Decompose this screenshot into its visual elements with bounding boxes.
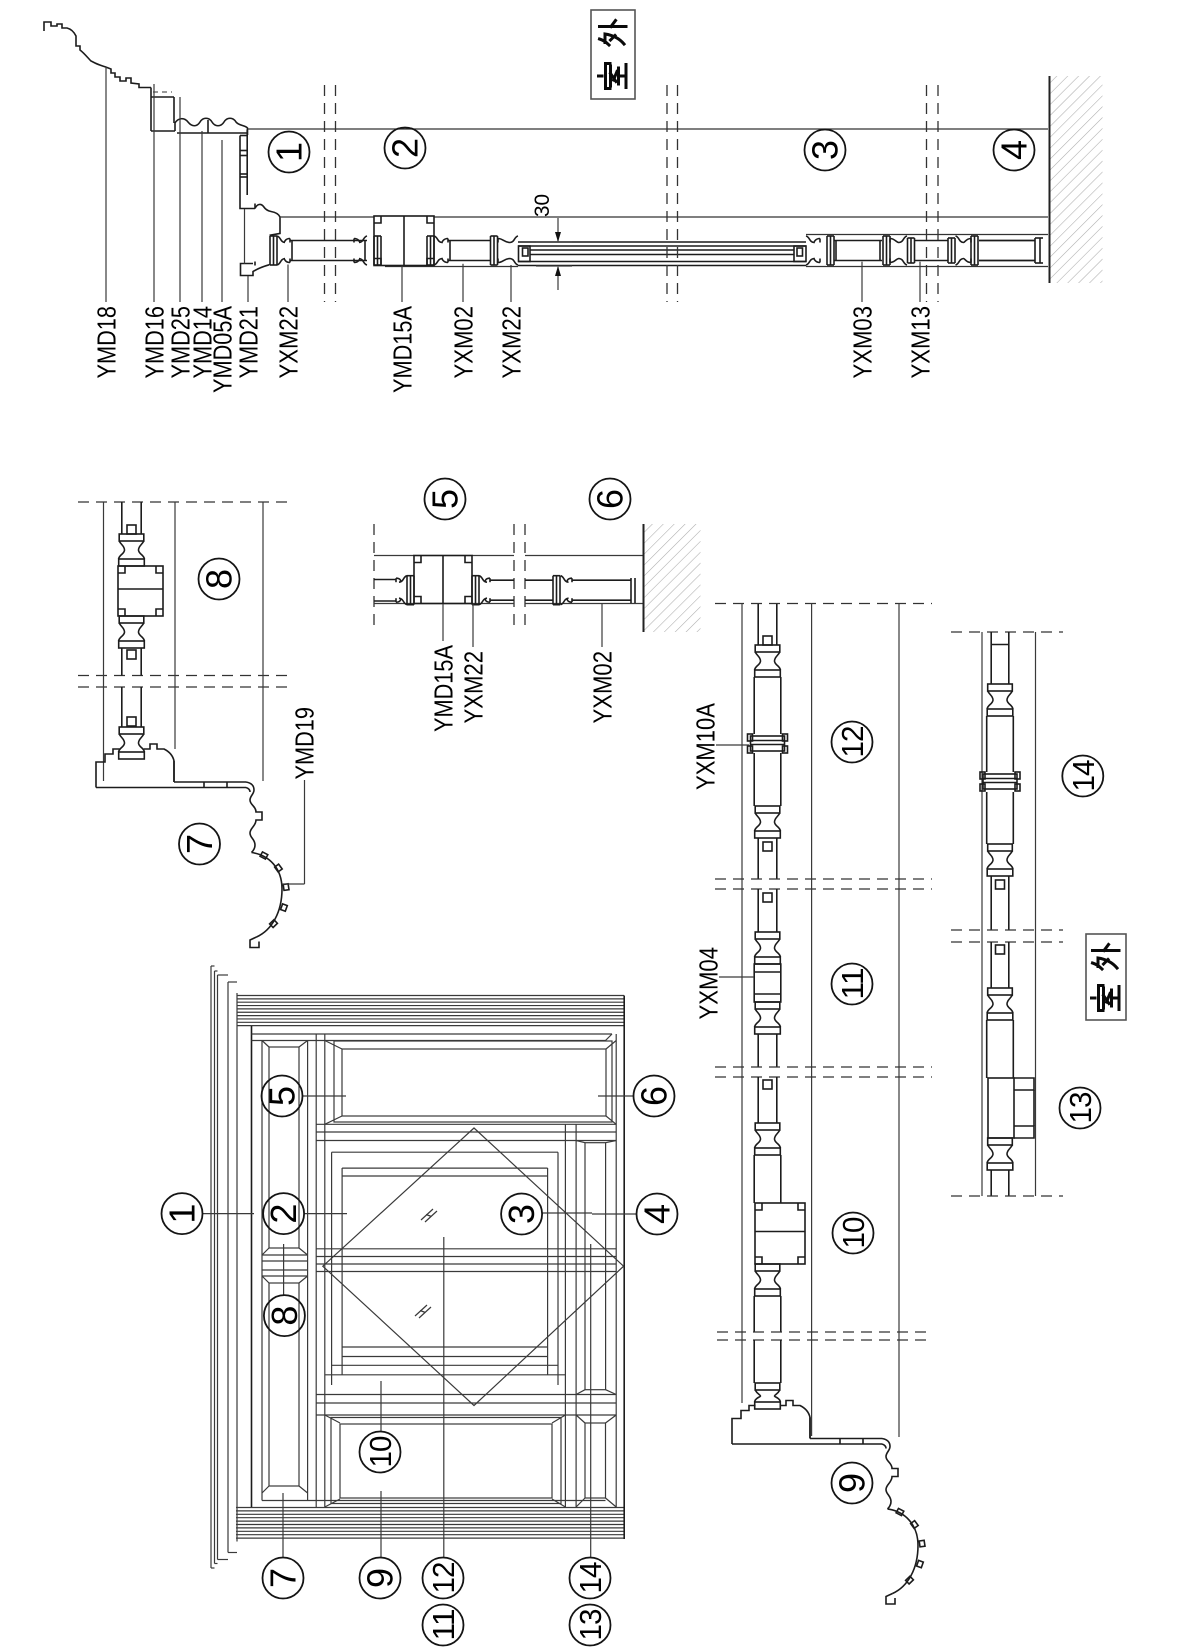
svg-text:13: 13 xyxy=(1063,1093,1098,1124)
svg-text:YXM22: YXM22 xyxy=(459,651,489,724)
svg-text:3: 3 xyxy=(501,1204,542,1224)
svg-text:4: 4 xyxy=(994,140,1035,160)
svg-text:YXM22: YXM22 xyxy=(497,306,527,379)
svg-text:30: 30 xyxy=(531,194,554,217)
svg-text:5: 5 xyxy=(425,489,466,509)
svg-text:YMD15A: YMD15A xyxy=(429,644,459,732)
svg-text:13: 13 xyxy=(573,1610,608,1641)
svg-text:11: 11 xyxy=(835,969,870,1000)
svg-text:YMD19: YMD19 xyxy=(290,707,320,780)
svg-text:14: 14 xyxy=(573,1562,608,1594)
svg-text:9: 9 xyxy=(360,1568,401,1588)
svg-text:4: 4 xyxy=(637,1204,678,1224)
svg-text:YXM10A: YXM10A xyxy=(691,702,721,790)
svg-text:3: 3 xyxy=(805,140,846,160)
svg-text:2: 2 xyxy=(263,1204,304,1224)
svg-text:14: 14 xyxy=(1066,760,1101,792)
svg-text:8: 8 xyxy=(199,569,240,589)
svg-text:YXM02: YXM02 xyxy=(449,306,479,379)
svg-text:7: 7 xyxy=(179,834,220,854)
svg-text:11: 11 xyxy=(426,1610,461,1641)
svg-text:10: 10 xyxy=(363,1436,398,1468)
svg-text:YMD18: YMD18 xyxy=(92,306,122,379)
svg-text:9: 9 xyxy=(832,1473,873,1493)
svg-text:YXM03: YXM03 xyxy=(848,306,878,379)
svg-text:YMD21: YMD21 xyxy=(234,306,264,379)
svg-text:1: 1 xyxy=(269,142,310,162)
svg-text:YXM22: YXM22 xyxy=(274,306,304,379)
svg-text:7: 7 xyxy=(263,1568,304,1588)
svg-text:1: 1 xyxy=(162,1204,203,1224)
svg-text:6: 6 xyxy=(634,1086,675,1106)
svg-text:6: 6 xyxy=(590,489,631,509)
svg-text:YXM02: YXM02 xyxy=(588,651,618,724)
svg-text:YMD15A: YMD15A xyxy=(388,305,418,393)
svg-text:2: 2 xyxy=(385,138,426,158)
svg-text:5: 5 xyxy=(262,1086,303,1106)
svg-text:8: 8 xyxy=(264,1306,305,1326)
svg-text:YXM04: YXM04 xyxy=(694,947,724,1020)
svg-text:12: 12 xyxy=(835,727,870,758)
svg-text:12: 12 xyxy=(426,1563,461,1594)
svg-text:YXM13: YXM13 xyxy=(906,306,936,379)
svg-text:10: 10 xyxy=(836,1217,871,1249)
